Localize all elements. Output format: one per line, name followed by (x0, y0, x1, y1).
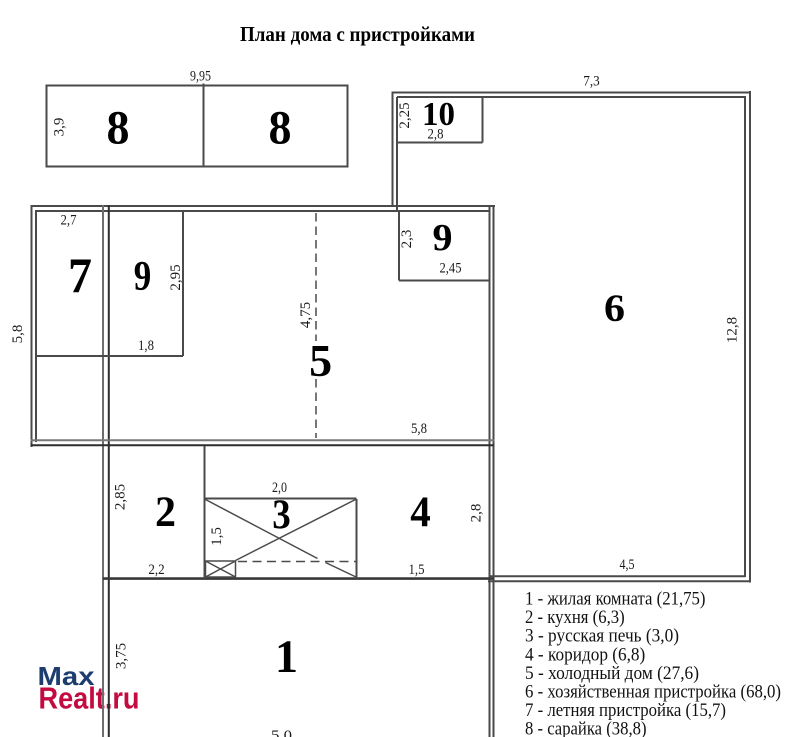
svg-text:2,8: 2,8 (428, 127, 444, 143)
svg-text:1,8: 1,8 (138, 338, 154, 354)
svg-text:7: 7 (68, 247, 92, 303)
svg-text:3,9: 3,9 (52, 118, 68, 137)
svg-text:2,95: 2,95 (168, 264, 184, 290)
svg-text:2,2: 2,2 (148, 562, 164, 578)
svg-text:12,8: 12,8 (725, 317, 741, 343)
svg-text:2,0: 2,0 (272, 480, 287, 496)
svg-text:4,5: 4,5 (620, 557, 635, 573)
svg-text:1,5: 1,5 (409, 562, 425, 578)
svg-text:9,95: 9,95 (190, 69, 211, 85)
svg-text:2: 2 (155, 489, 176, 536)
svg-text:6: 6 (604, 287, 625, 330)
svg-text:5,8: 5,8 (10, 325, 26, 344)
svg-text:8 - сарайка (38,8): 8 - сарайка (38,8) (525, 719, 647, 737)
svg-text:1: 1 (275, 631, 298, 683)
svg-text:2,7: 2,7 (61, 213, 77, 229)
svg-text:4: 4 (410, 489, 431, 536)
svg-text:Realt.ru: Realt.ru (39, 682, 140, 716)
svg-text:2,3: 2,3 (399, 230, 415, 249)
svg-text:5,8: 5,8 (411, 421, 427, 437)
svg-text:5,0: 5,0 (271, 728, 292, 737)
svg-text:План дома с пристройками: План дома с пристройками (240, 22, 475, 46)
svg-text:4,75: 4,75 (298, 302, 314, 328)
svg-text:1,5: 1,5 (209, 527, 225, 546)
svg-text:8: 8 (269, 102, 292, 155)
svg-text:2,8: 2,8 (469, 504, 485, 523)
svg-text:7,3: 7,3 (583, 74, 600, 90)
svg-text:2,45: 2,45 (440, 261, 462, 277)
svg-text:2,85: 2,85 (113, 484, 129, 510)
svg-text:2,25: 2,25 (397, 102, 413, 128)
svg-text:8: 8 (107, 102, 130, 155)
svg-text:9: 9 (433, 217, 453, 259)
svg-text:5: 5 (309, 336, 332, 386)
svg-text:3,75: 3,75 (114, 643, 130, 669)
svg-text:3: 3 (272, 493, 291, 539)
svg-text:9: 9 (134, 254, 152, 300)
